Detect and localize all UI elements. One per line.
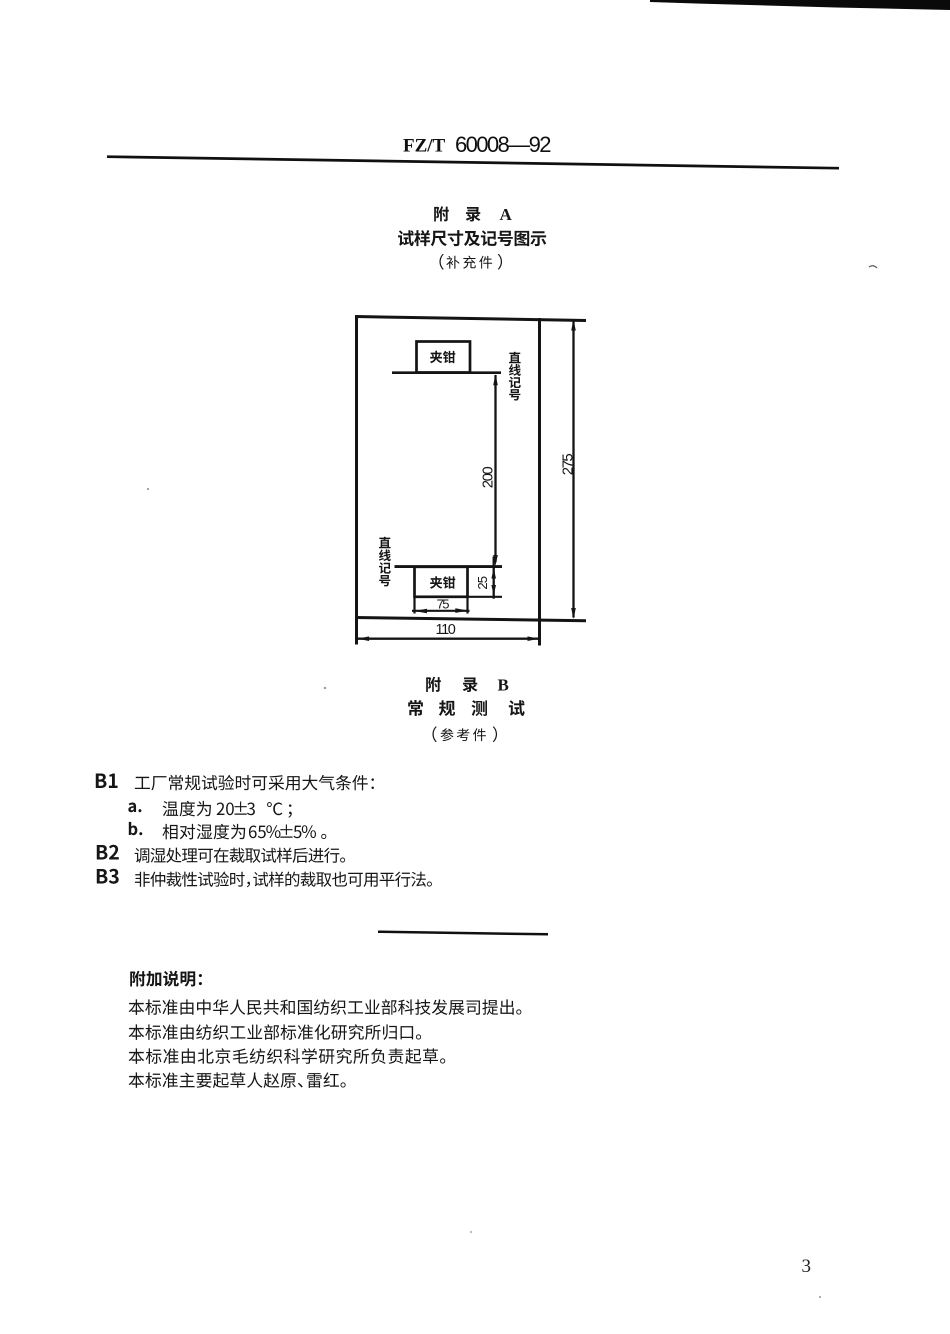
svg-text:275: 275 xyxy=(560,454,577,476)
svg-text:200: 200 xyxy=(480,467,497,489)
svg-text:60008—92: 60008—92 xyxy=(455,132,551,157)
svg-text:A: A xyxy=(500,205,513,224)
svg-text:75: 75 xyxy=(437,597,450,612)
svg-text:3: 3 xyxy=(802,1256,812,1277)
svg-text:B: B xyxy=(498,676,509,695)
svg-text:110: 110 xyxy=(436,622,456,638)
svg-text:FZ/T: FZ/T xyxy=(403,136,446,157)
svg-text:25: 25 xyxy=(475,576,490,589)
